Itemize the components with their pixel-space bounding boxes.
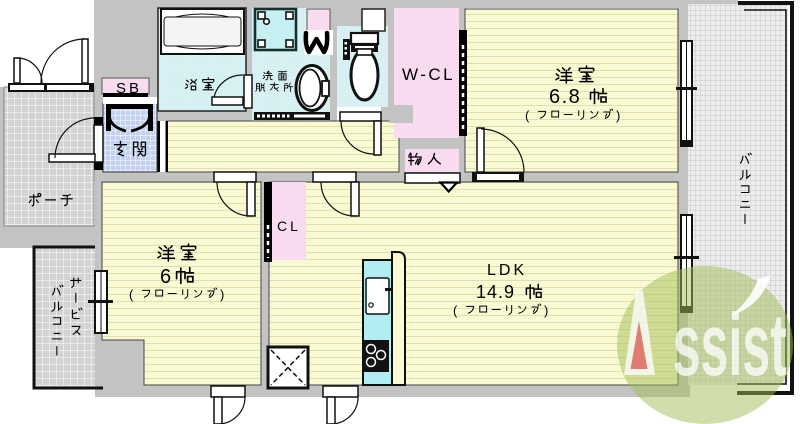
svg-text:CL: CL xyxy=(277,218,301,234)
svg-text:6: 6 xyxy=(160,266,171,288)
svg-text:W-CL: W-CL xyxy=(402,65,455,84)
svg-text:): ) xyxy=(544,303,548,318)
svg-text:14.9: 14.9 xyxy=(476,282,515,302)
svg-text:): ) xyxy=(616,108,620,123)
svg-text:LDK: LDK xyxy=(487,262,527,279)
svg-text:(: ( xyxy=(129,287,134,302)
svg-text:6.8: 6.8 xyxy=(549,86,581,108)
svg-text:(: ( xyxy=(525,108,530,123)
svg-text:SB: SB xyxy=(116,80,142,97)
svg-text:): ) xyxy=(220,287,224,302)
svg-text:ssist: ssist xyxy=(673,296,787,394)
svg-text:(: ( xyxy=(453,303,458,318)
